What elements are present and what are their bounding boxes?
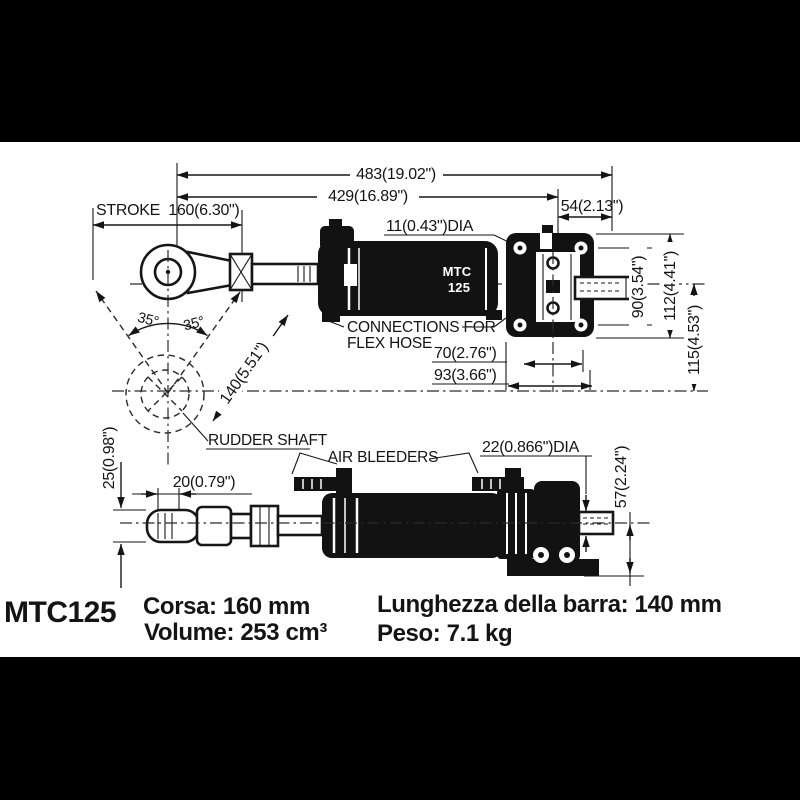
mounting-base: [507, 559, 599, 576]
bottom-black-band: [0, 657, 800, 800]
air-bleeders-label: AIR BLEEDERS: [328, 449, 438, 466]
dim-rod-end: 25(0.98"): [101, 427, 118, 490]
dim-height: 57(2.24"): [613, 446, 630, 509]
hose-port-left: [322, 310, 340, 322]
dim-flange-width: 54(2.13"): [561, 198, 624, 215]
scanned-page: 483(19.02") 429(16.89") 54(2.13") STROKE…: [0, 0, 800, 800]
dim-shaft-dia: 22(0.866")DIA: [482, 439, 580, 456]
cylinder-badge-line1: MTC: [443, 264, 472, 279]
spec-corsa: Corsa: 160 mm: [143, 593, 310, 620]
output-shaft-stub: [575, 277, 633, 299]
spec-peso: Peso: 7.1 kg: [377, 620, 512, 647]
dim-flange-height: 112(4.41"): [662, 251, 679, 321]
connections-label-line2: FLEX HOSE: [347, 335, 432, 352]
dim-to-flange: 429(16.89"): [328, 188, 408, 205]
dim-bolt-spacing: 90(3.54"): [630, 256, 647, 319]
model-name: MTC125: [4, 596, 116, 629]
rudder-shaft-label: RUDDER SHAFT: [208, 432, 328, 449]
technical-drawing: 483(19.02") 429(16.89") 54(2.13") STROKE…: [0, 0, 800, 800]
cylinder-badge-line2: 125: [448, 280, 470, 295]
dim-ports-inner: 70(2.76"): [434, 345, 497, 362]
dim-thread: 20(0.79"): [173, 474, 236, 491]
dim-stroke: STROKE 160(6.30"): [96, 202, 239, 219]
dim-ports-outer: 93(3.66"): [434, 367, 497, 384]
spec-volume: Volume: 253 cm³: [144, 619, 327, 646]
dim-rod-dia: 11(0.43")DIA: [386, 218, 474, 235]
spec-lunghezza: Lunghezza della barra: 140 mm: [377, 591, 722, 618]
dim-overall-length: 483(19.02"): [356, 166, 436, 183]
dim-axis-offset: 115(4.53"): [686, 305, 703, 375]
top-black-band: [0, 0, 800, 142]
